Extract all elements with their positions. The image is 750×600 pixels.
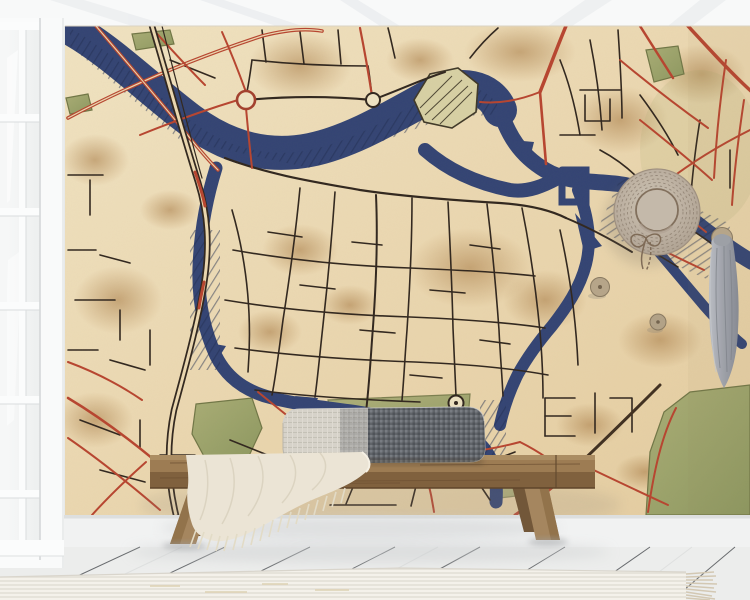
room-scene: [0, 0, 750, 600]
light-overlay: [0, 0, 750, 600]
